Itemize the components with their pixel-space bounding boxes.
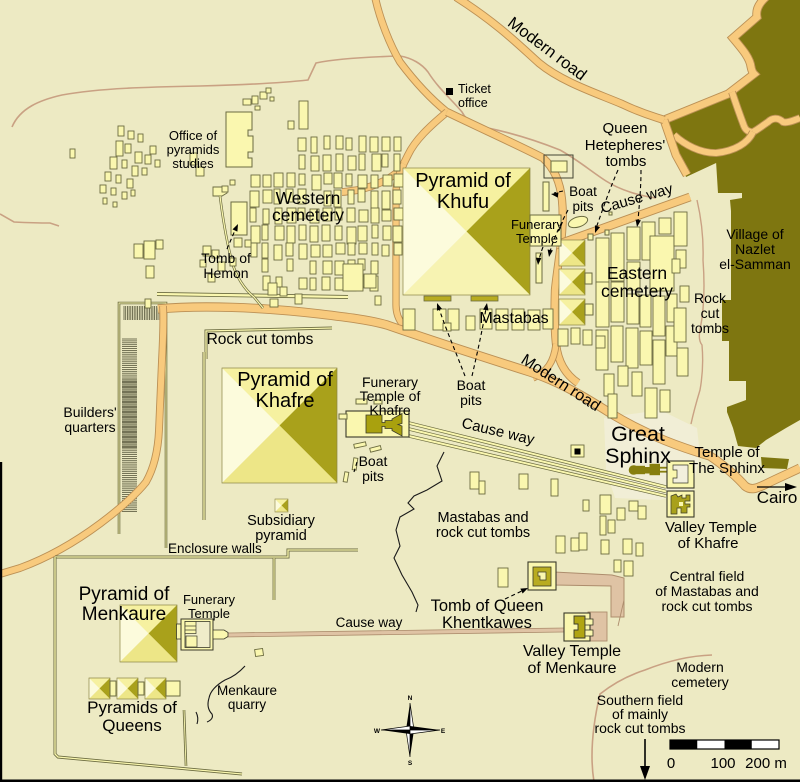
svg-text:cemetery: cemetery xyxy=(671,674,729,690)
svg-text:pits: pits xyxy=(362,468,384,484)
svg-text:Rock: Rock xyxy=(694,290,727,306)
svg-text:Cairo: Cairo xyxy=(757,488,798,507)
svg-text:0: 0 xyxy=(667,755,675,772)
svg-text:Great: Great xyxy=(611,422,665,446)
svg-text:N: N xyxy=(408,695,413,702)
svg-text:Khufu: Khufu xyxy=(437,191,489,213)
svg-text:office: office xyxy=(458,96,488,110)
svg-text:of Menkaure: of Menkaure xyxy=(528,660,617,677)
svg-text:E: E xyxy=(441,728,446,735)
svg-text:quarters: quarters xyxy=(64,419,115,435)
svg-text:200 m: 200 m xyxy=(745,755,787,772)
svg-text:pits: pits xyxy=(460,392,482,408)
svg-text:Queen: Queen xyxy=(602,120,647,137)
svg-text:Rock cut tombs: Rock cut tombs xyxy=(207,331,314,348)
svg-text:pits: pits xyxy=(572,199,593,214)
svg-text:Menkaure: Menkaure xyxy=(82,604,167,625)
svg-text:Valley Temple: Valley Temple xyxy=(665,519,757,536)
svg-text:tombs: tombs xyxy=(606,153,647,170)
svg-text:Enclosure walls: Enclosure walls xyxy=(168,541,262,556)
svg-text:quarry: quarry xyxy=(228,697,267,712)
svg-text:Temple of: Temple of xyxy=(694,444,760,461)
svg-text:rock cut tombs: rock cut tombs xyxy=(594,720,685,736)
svg-text:Nazlet: Nazlet xyxy=(735,241,775,257)
svg-text:Boat: Boat xyxy=(457,377,486,393)
svg-text:Queens: Queens xyxy=(102,716,162,735)
svg-text:Valley Temple: Valley Temple xyxy=(523,643,621,660)
svg-text:Sphinx: Sphinx xyxy=(605,444,671,468)
svg-text:studies: studies xyxy=(172,156,214,171)
svg-text:Subsidiary: Subsidiary xyxy=(247,513,315,529)
svg-text:Temple: Temple xyxy=(188,606,230,621)
svg-text:Pyramids of: Pyramids of xyxy=(87,698,177,717)
svg-text:cemetery: cemetery xyxy=(272,205,344,225)
svg-text:of Mastabas and: of Mastabas and xyxy=(655,583,759,599)
svg-text:The Sphinx: The Sphinx xyxy=(689,460,765,477)
svg-text:Khentkawes: Khentkawes xyxy=(442,614,532,632)
svg-text:Eastern: Eastern xyxy=(607,263,667,283)
svg-text:Pyramid of: Pyramid of xyxy=(79,584,171,605)
svg-text:Pyramid of: Pyramid of xyxy=(415,170,511,192)
svg-text:Temple: Temple xyxy=(516,231,558,246)
svg-text:Central field: Central field xyxy=(670,568,745,584)
svg-text:Tomb of: Tomb of xyxy=(201,250,251,266)
svg-text:Boat: Boat xyxy=(359,453,388,469)
svg-text:cemetery: cemetery xyxy=(601,281,673,301)
svg-text:Menkaure: Menkaure xyxy=(217,683,277,698)
svg-text:S: S xyxy=(408,760,413,767)
svg-text:Mastabas: Mastabas xyxy=(479,310,548,327)
svg-text:tombs: tombs xyxy=(691,320,729,336)
svg-text:Hemon: Hemon xyxy=(203,265,248,281)
svg-text:100: 100 xyxy=(710,755,735,772)
svg-text:cut: cut xyxy=(701,305,720,321)
svg-text:Builders': Builders' xyxy=(63,404,116,420)
svg-text:Khafre: Khafre xyxy=(256,390,315,412)
svg-text:pyramids: pyramids xyxy=(167,142,220,157)
svg-text:Funerary: Funerary xyxy=(511,217,564,232)
svg-text:rock cut tombs: rock cut tombs xyxy=(661,598,752,614)
svg-text:of Khafre: of Khafre xyxy=(678,535,739,552)
svg-text:Boat: Boat xyxy=(569,184,597,199)
svg-text:Tomb of Queen: Tomb of Queen xyxy=(431,597,544,615)
svg-text:Ticket: Ticket xyxy=(458,82,491,96)
svg-text:Village of: Village of xyxy=(726,226,783,242)
svg-text:Cause way: Cause way xyxy=(336,615,403,630)
svg-text:W: W xyxy=(374,728,381,735)
svg-text:rock cut tombs: rock cut tombs xyxy=(436,525,530,541)
svg-text:el-Samman: el-Samman xyxy=(719,256,791,272)
svg-text:Funerary: Funerary xyxy=(183,592,236,607)
svg-text:Hetepheres': Hetepheres' xyxy=(585,137,666,154)
svg-text:pyramid: pyramid xyxy=(255,528,307,544)
svg-text:Khafre: Khafre xyxy=(369,402,410,418)
svg-text:Office of: Office of xyxy=(169,128,218,143)
svg-text:Pyramid of: Pyramid of xyxy=(237,369,333,391)
svg-text:Mastabas and: Mastabas and xyxy=(437,510,528,526)
svg-text:Modern: Modern xyxy=(676,659,723,675)
